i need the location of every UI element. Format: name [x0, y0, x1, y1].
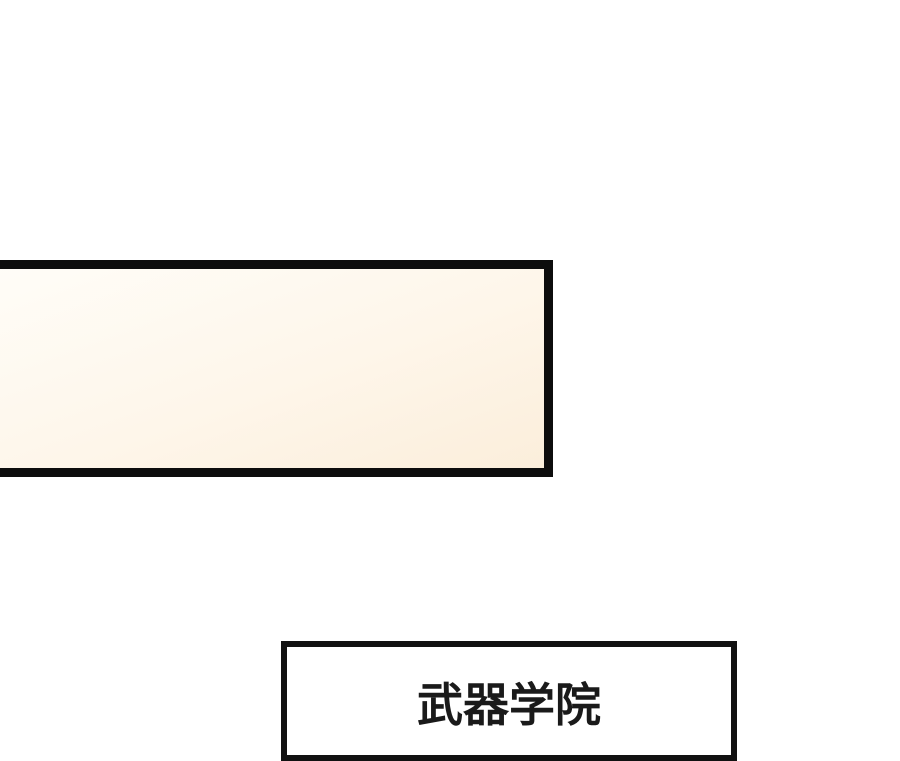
location-label-box: 武器学院 — [281, 641, 737, 761]
location-label-text: 武器学院 — [287, 680, 731, 731]
caption-box — [0, 260, 553, 477]
